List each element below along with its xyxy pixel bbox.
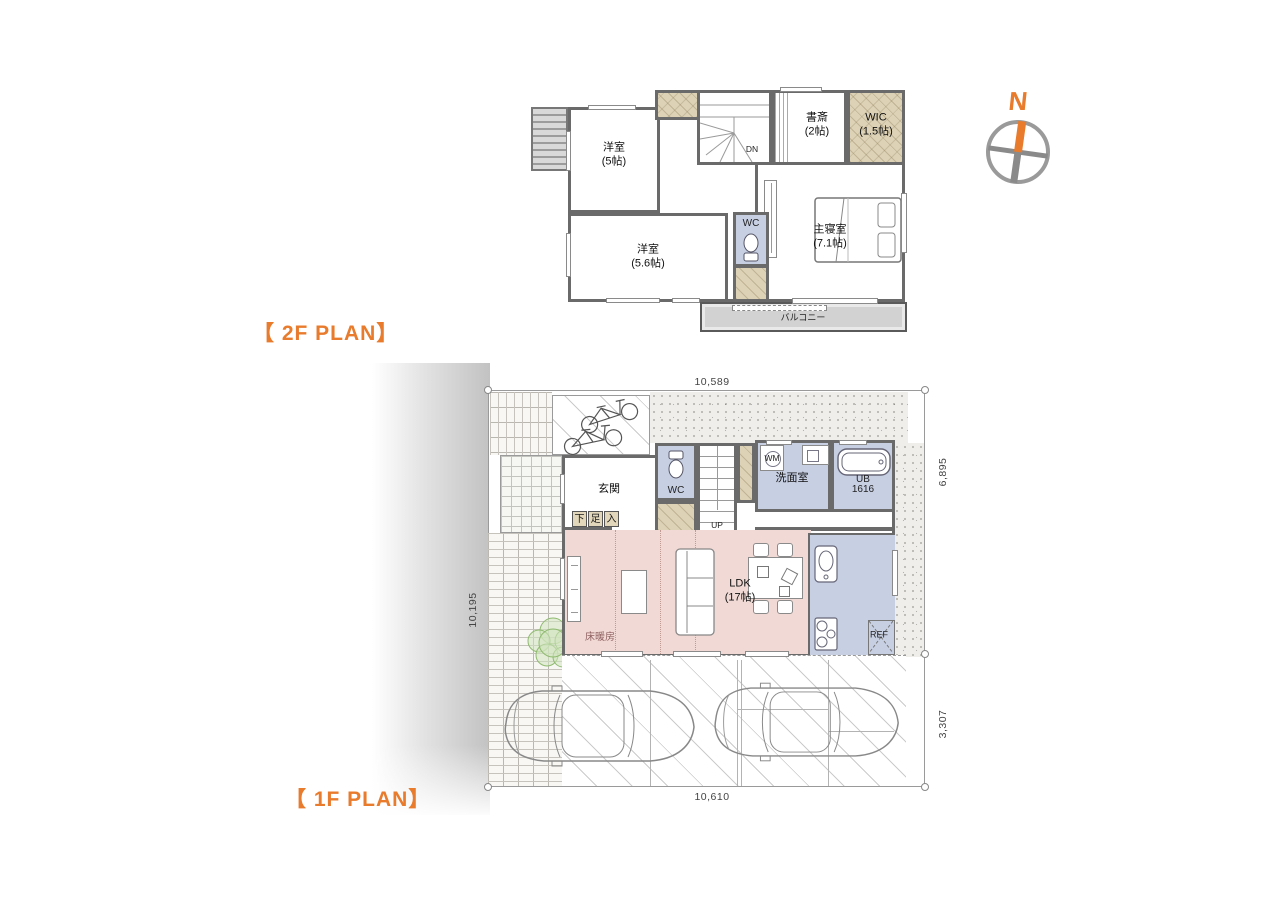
f2-room-wic-label: WIC(1.5帖) <box>859 111 893 139</box>
f1-genkan-label: 玄関 <box>598 483 620 497</box>
dim-left: 10,195 <box>467 584 479 636</box>
bicycle-area <box>552 395 650 455</box>
car-icon <box>710 682 904 762</box>
boundary-marker <box>921 650 929 658</box>
vanity-counter <box>802 445 829 465</box>
window <box>766 440 792 445</box>
f2-room-yoshitsu-5-label: 洋室(5帖) <box>602 141 626 169</box>
sofa-icon <box>675 548 715 636</box>
dining-chair <box>777 600 793 614</box>
window <box>673 651 721 657</box>
f1-ref-label: REF <box>870 631 888 640</box>
f2-room-yoshitsu-56-label: 洋室(5.6帖) <box>631 243 665 271</box>
compass-icon <box>982 114 1054 190</box>
desk-hatch <box>775 93 791 162</box>
shoe-box: 足 <box>588 511 603 527</box>
f2-room-shosai-label: 書斎(2帖) <box>805 111 829 139</box>
ground-stipple-top <box>650 392 908 443</box>
f1-wm-label: WM <box>764 454 779 463</box>
plan-2f-title: 【 2F PLAN】 <box>253 317 398 347</box>
porch-roof-hatch <box>531 107 568 171</box>
f2-stairs <box>697 90 772 165</box>
f1-ub-label: UB1616 <box>852 475 874 495</box>
toilet-icon <box>741 233 761 263</box>
car-icon <box>500 685 700 767</box>
balcony-window-strip <box>732 305 827 311</box>
brick-paving-topleft <box>490 392 552 455</box>
window <box>560 474 565 504</box>
f1-wc-label: WC <box>668 486 685 496</box>
floor-plan-sheet: 【 2F PLAN】 【 1F PLAN】 N 洋室(5帖) <box>0 0 1280 905</box>
dining-chair <box>753 543 769 557</box>
compass: N <box>982 86 1054 190</box>
window <box>566 233 571 277</box>
grid-line <box>615 530 616 654</box>
plan-1f: 玄関 下 足 入 WC UP WM <box>483 378 958 813</box>
shoe-cabinet: 下 足 入 <box>572 511 620 528</box>
tv-board <box>567 556 581 622</box>
dim-bottom: 10,610 <box>662 791 762 803</box>
toilet-icon <box>666 450 686 480</box>
boundary-marker <box>484 783 492 791</box>
f1-senmenshitsu-label: 洗面室 <box>776 472 809 486</box>
window <box>780 87 822 92</box>
window <box>792 298 878 304</box>
dim-top: 10,589 <box>662 376 762 388</box>
grid-line <box>660 530 661 654</box>
window <box>606 298 660 303</box>
low-table <box>621 570 647 614</box>
f2-closet-below-wc <box>733 265 769 302</box>
window <box>745 651 789 657</box>
window <box>560 558 565 600</box>
window <box>566 131 571 171</box>
f2-wc-label: WC <box>743 219 760 229</box>
boundary-marker <box>484 386 492 394</box>
floor-heating-label: 床暖房 <box>585 628 615 643</box>
f2-hall-patch <box>658 165 724 213</box>
compass-north-label: N <box>980 86 1055 117</box>
stove-icon <box>814 617 838 651</box>
dining-table <box>748 557 803 599</box>
sink-icon <box>814 545 838 583</box>
window <box>672 298 700 303</box>
f2-balcony-label: バルコニー <box>781 314 826 323</box>
shoe-box: 下 <box>572 511 587 527</box>
f2-room-master-label: 主寝室(7.1帖) <box>813 223 847 251</box>
dim-right-upper: 6,895 <box>937 450 949 494</box>
window <box>892 550 898 596</box>
window <box>588 105 636 110</box>
f1-closet-by-stairs <box>737 443 755 503</box>
shoe-box: 入 <box>604 511 619 527</box>
plan-1f-title: 【 1F PLAN】 <box>285 783 430 813</box>
boundary-marker <box>921 783 929 791</box>
driveway <box>562 655 906 786</box>
bathtub-icon <box>837 448 891 476</box>
f1-closet-below-wc <box>655 501 697 533</box>
f1-ldk-label: LDK(17帖) <box>725 577 756 605</box>
stairs-icon <box>700 93 769 162</box>
boundary-marker <box>921 386 929 394</box>
dining-chair <box>777 543 793 557</box>
bicycle-icon <box>557 415 630 458</box>
dim-right-lower: 3,307 <box>937 702 949 746</box>
f2-stairs-dn-label: DN <box>746 145 758 154</box>
window <box>601 651 643 657</box>
entrance-porch-tiles <box>500 455 563 533</box>
plan-2f: 洋室(5帖) DN 書斎(2帖) WIC(1.5帖) <box>530 85 910 335</box>
window <box>839 440 867 445</box>
f2-closet-top <box>655 90 700 120</box>
window <box>901 193 907 253</box>
f1-stairs-up-label: UP <box>711 521 723 530</box>
